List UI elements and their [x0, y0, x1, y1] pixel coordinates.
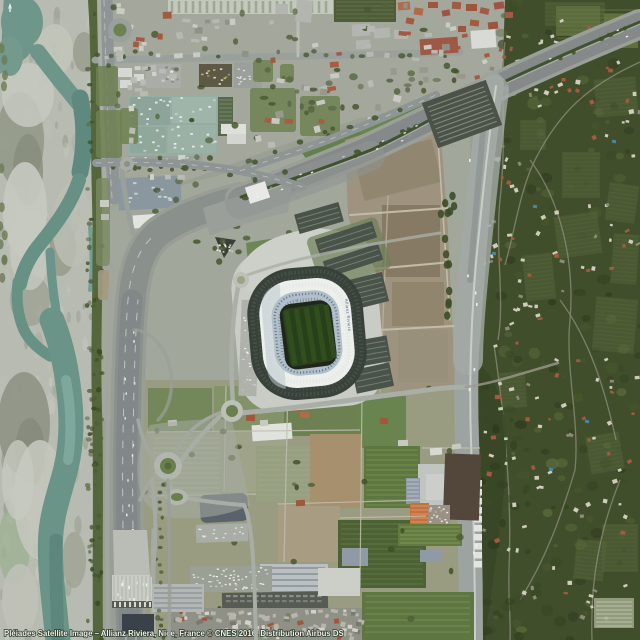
svg-text:Pléiades Satellite Image – All: Pléiades Satellite Image – Allianz Rivie…: [4, 629, 344, 638]
